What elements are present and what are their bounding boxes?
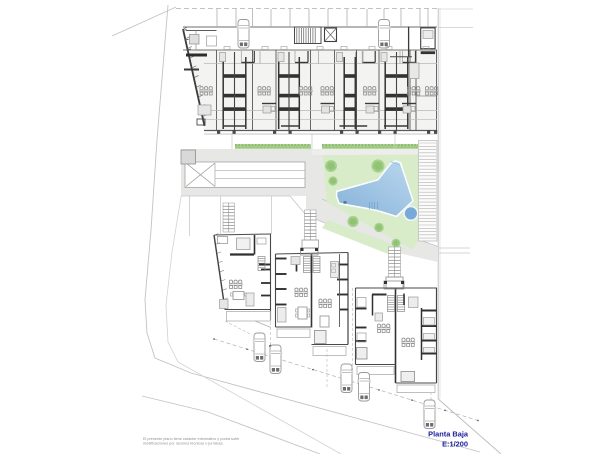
svg-text:Planta Baja: Planta Baja xyxy=(428,430,469,439)
svg-text:modificaciones por razones téc: modificaciones por razones técnicas o ju… xyxy=(143,442,224,446)
svg-text:El presente plano tiene caráct: El presente plano tiene carácter informa… xyxy=(143,437,240,441)
svg-text:E:1/200: E:1/200 xyxy=(442,440,468,449)
